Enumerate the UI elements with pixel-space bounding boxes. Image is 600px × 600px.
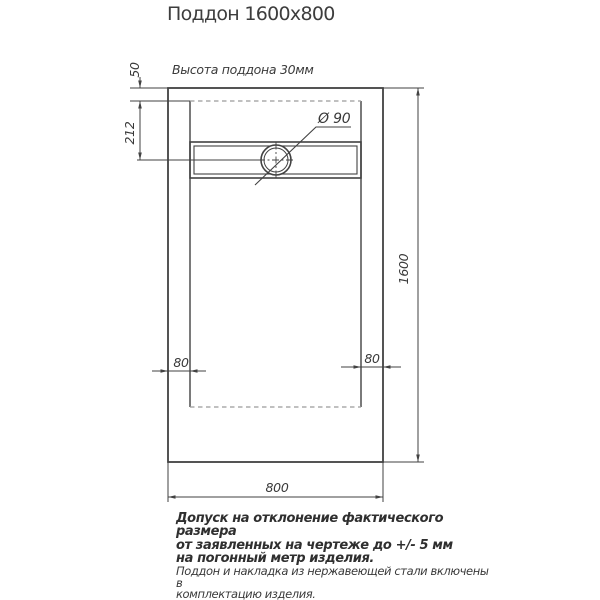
tray-outline bbox=[168, 88, 383, 462]
included-note-line1: Поддон и накладка из нержавеющей стали в… bbox=[176, 566, 496, 589]
dimension-drain-offset-212: 212 bbox=[122, 101, 142, 160]
tolerance-note: Допуск на отклонение фактического размер… bbox=[176, 512, 496, 566]
tolerance-note-line1: Допуск на отклонение фактического размер… bbox=[176, 512, 496, 539]
arrow-left-80-left bbox=[190, 369, 198, 373]
technical-drawing: Ø 90 Высота поддона 30мм 50 212 1600 bbox=[0, 0, 600, 600]
arrow-right-80-left bbox=[161, 369, 169, 373]
tolerance-note-line2: от заявленных на чертеже до +/- 5 мм bbox=[176, 539, 496, 552]
dim-label-50: 50 bbox=[127, 62, 142, 78]
dimension-side-right-80: 80 bbox=[341, 351, 401, 369]
dim-label-800: 800 bbox=[266, 480, 289, 495]
arrow-right-80-right bbox=[354, 365, 362, 369]
arrow-right-800 bbox=[376, 495, 384, 499]
arrow-up-212 bbox=[138, 101, 142, 109]
arrow-left-80-right bbox=[383, 365, 391, 369]
arrow-up-1600 bbox=[416, 88, 420, 96]
tray-outer-rect bbox=[168, 88, 383, 462]
dim-label-80-left: 80 bbox=[173, 355, 189, 370]
dim-label-80-right: 80 bbox=[364, 351, 380, 366]
arrow-down-50 bbox=[138, 81, 142, 89]
drawing-canvas: Поддон 1600x800 Ø 90 bbox=[0, 0, 600, 600]
drain-diameter-label: Ø 90 bbox=[317, 111, 351, 127]
height-note: Высота поддона 30мм bbox=[172, 62, 314, 77]
drain bbox=[258, 143, 294, 178]
package-notes: Поддон и накладка из нержавеющей стали в… bbox=[176, 566, 496, 600]
dimension-side-left-80: 80 bbox=[152, 355, 206, 373]
arrow-down-212 bbox=[138, 153, 142, 161]
dimension-length-1600: 1600 bbox=[383, 88, 424, 462]
dim-label-212: 212 bbox=[122, 121, 137, 144]
arrow-left-800 bbox=[168, 495, 176, 499]
dim-label-1600: 1600 bbox=[396, 253, 411, 284]
dimension-width-800: 800 bbox=[168, 462, 383, 502]
arrow-down-1600 bbox=[416, 455, 420, 463]
